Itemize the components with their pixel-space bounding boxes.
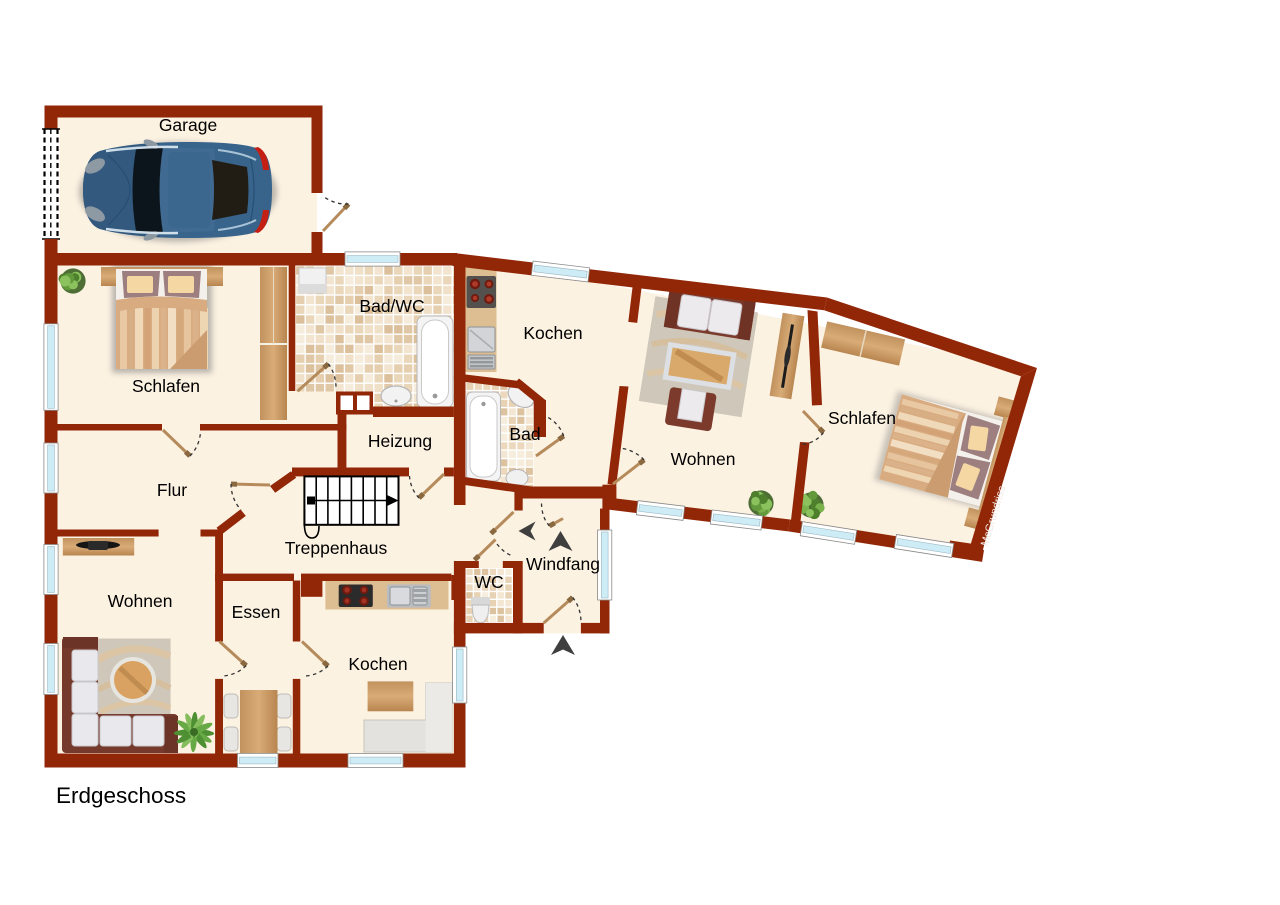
svg-text:Kochen: Kochen <box>348 654 407 674</box>
svg-text:Bad: Bad <box>509 424 540 444</box>
svg-text:Bad/WC: Bad/WC <box>359 296 424 316</box>
svg-text:Wohnen: Wohnen <box>671 449 736 469</box>
svg-text:Schlafen: Schlafen <box>828 408 896 428</box>
svg-text:Flur: Flur <box>157 480 187 500</box>
svg-text:WC: WC <box>474 572 503 592</box>
svg-text:Schlafen: Schlafen <box>132 376 200 396</box>
svg-text:Treppenhaus: Treppenhaus <box>285 538 388 558</box>
svg-text:Heizung: Heizung <box>368 431 432 451</box>
svg-text:Windfang: Windfang <box>526 554 600 574</box>
svg-text:Kochen: Kochen <box>523 323 582 343</box>
svg-text:Essen: Essen <box>232 602 281 622</box>
svg-text:Erdgeschoss: Erdgeschoss <box>56 783 186 808</box>
svg-text:Wohnen: Wohnen <box>108 591 173 611</box>
svg-text:Garage: Garage <box>159 115 217 135</box>
